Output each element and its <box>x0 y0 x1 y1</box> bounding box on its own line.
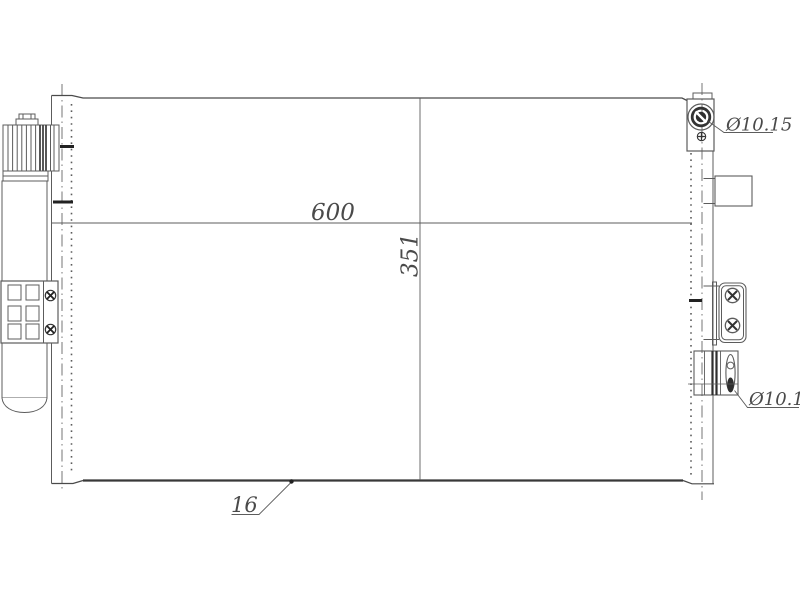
phillips-screw-icon <box>725 288 739 302</box>
drawing-page: 600 351 16 Ø10.15 Ø10.15 <box>0 0 800 600</box>
drawing-canvas: 600 351 16 Ø10.15 Ø10.15 <box>0 0 800 600</box>
receiver-drier <box>1 114 59 413</box>
drier-ribs-dark <box>40 125 46 171</box>
port-small-circle <box>727 362 734 369</box>
core-top-edge <box>52 96 688 101</box>
bracket-pad-outer <box>719 283 746 343</box>
drier-cap-base <box>16 119 38 125</box>
drier-cap-ticks <box>23 114 31 119</box>
side-boss <box>704 176 753 206</box>
fitting-notch <box>693 93 712 99</box>
boss-block <box>715 176 752 206</box>
label-top-port-diameter: Ø10.15 <box>709 115 793 136</box>
top-diameter-label: Ø10.15 <box>725 115 792 136</box>
depth-dimension-label: 16 <box>231 493 258 517</box>
width-dimension-label: 600 <box>311 200 355 226</box>
right-mounting-bracket <box>704 282 747 345</box>
fitting-screw-icon <box>697 132 705 140</box>
dimension-height: 351 <box>398 98 424 480</box>
dimension-depth: 16 <box>231 479 294 517</box>
phillips-screw-icon <box>725 318 739 332</box>
bottom-left-jog <box>52 481 84 484</box>
dimension-width: 600 <box>51 200 692 226</box>
drier-dome <box>2 398 47 413</box>
bottom-right-jog <box>683 481 714 484</box>
port-dark-plug <box>727 378 734 393</box>
drier-cap-top <box>19 114 35 119</box>
height-dimension-label: 351 <box>398 233 424 277</box>
fitting-dark-lines <box>713 351 717 395</box>
condenser-core <box>52 83 715 500</box>
label-bottom-port-diameter: Ø10.15 <box>735 389 800 410</box>
bottom-diameter-label: Ø10.15 <box>748 389 800 410</box>
bracket-pad-inner <box>722 286 744 340</box>
bottom-port-fitting <box>688 351 738 395</box>
depth-leader-dot <box>289 479 293 483</box>
